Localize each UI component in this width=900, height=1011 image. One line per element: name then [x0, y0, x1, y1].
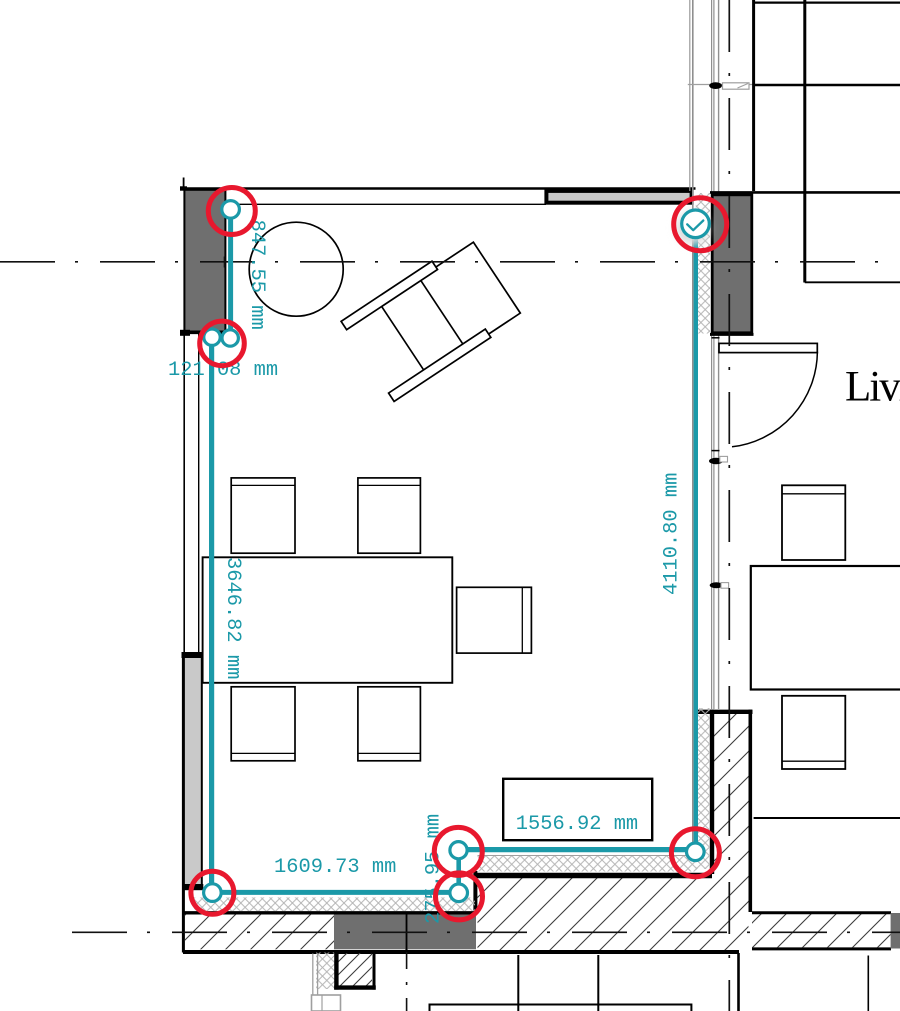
svg-text:Living: Living [845, 364, 900, 411]
svg-text:3646.82 mm: 3646.82 mm [221, 557, 244, 679]
svg-text:121.08 mm: 121.08 mm [168, 359, 278, 382]
svg-text:1609.73 mm: 1609.73 mm [274, 856, 396, 879]
svg-text:847.55 mm: 847.55 mm [245, 220, 268, 330]
svg-text:1556.92 mm: 1556.92 mm [516, 813, 638, 836]
svg-text:4110.80 mm: 4110.80 mm [660, 473, 683, 595]
